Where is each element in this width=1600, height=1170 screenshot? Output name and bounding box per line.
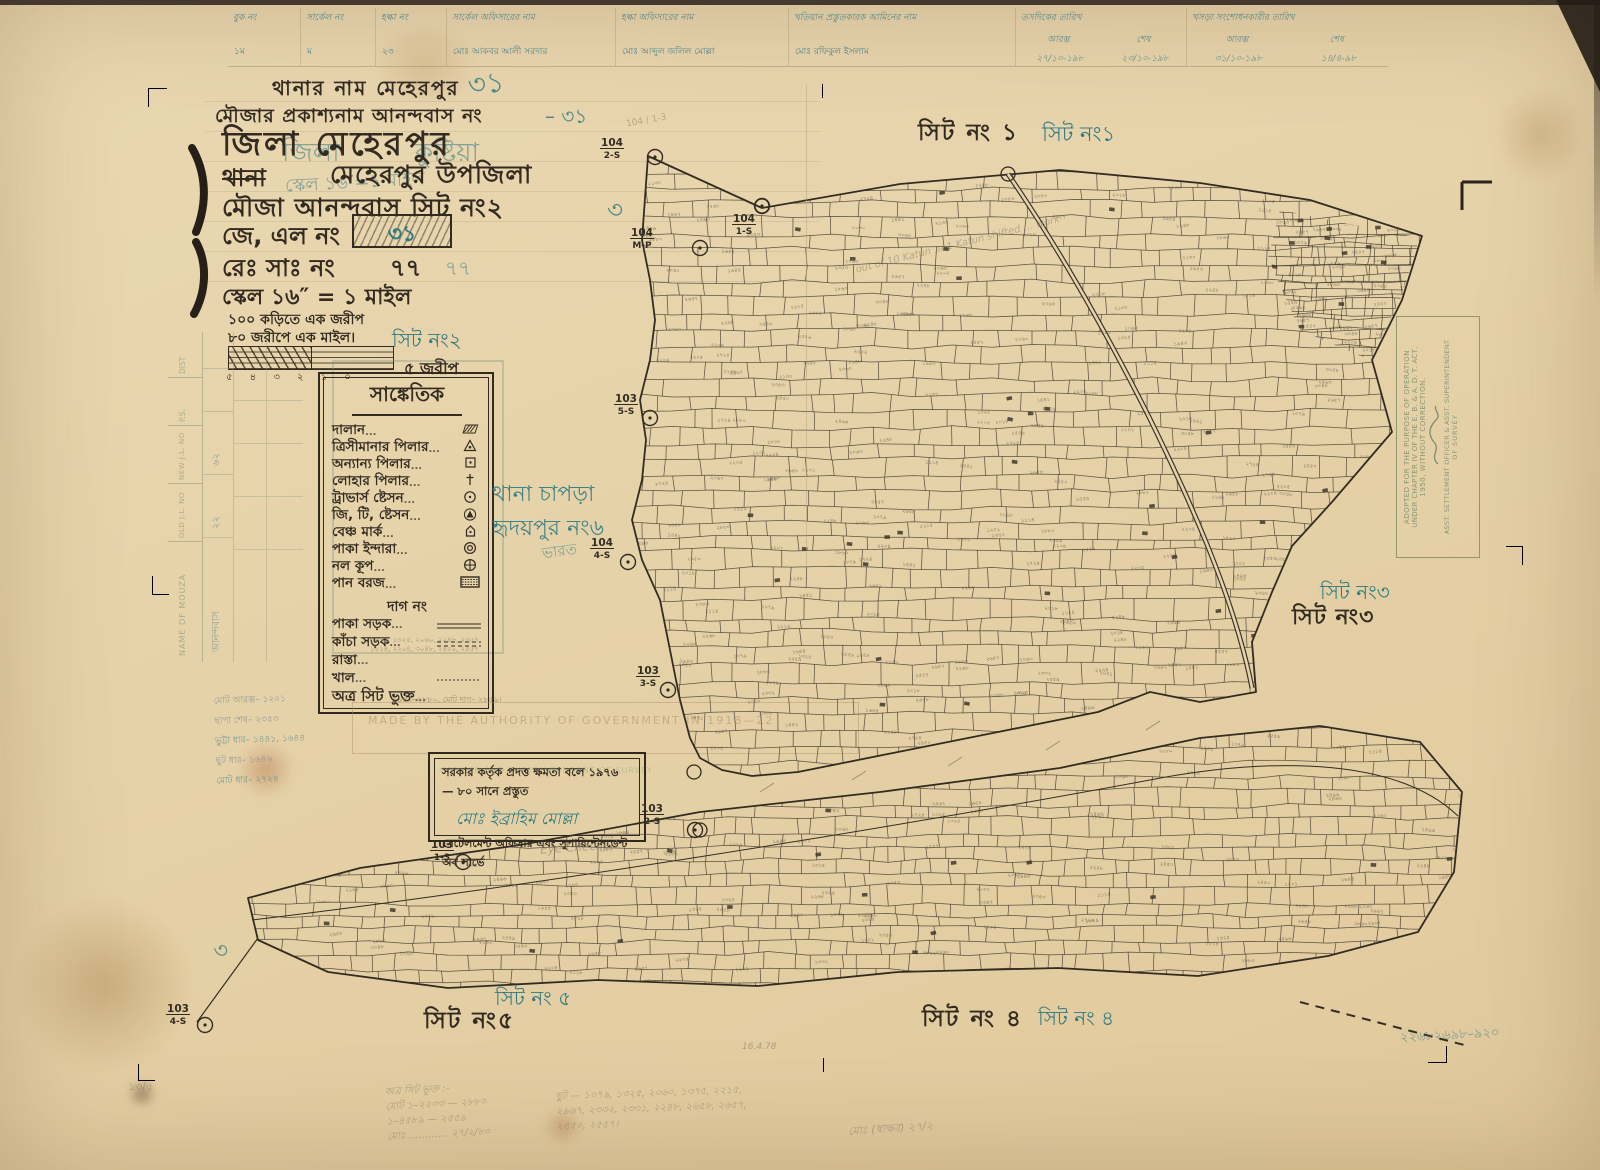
- station-sub-number: 4-S: [594, 551, 610, 561]
- svg-text:৩০৪৮: ৩০৪৮: [1181, 431, 1195, 437]
- scanned-cadastral-map-sheet: বুক নং১ম সার্কেল নংম হল্কা নং২৩ সার্কেল …: [0, 0, 1600, 1170]
- svg-text:১৬৪৪: ১৬৪৪: [792, 649, 806, 656]
- svg-text:১৩২৫: ১৩২৫: [821, 890, 835, 897]
- svg-text:২৪৫০: ২৪৫০: [1168, 662, 1182, 668]
- svg-text:১৮৬০: ১৮৬০: [834, 286, 848, 293]
- svg-text:৩০৪৮: ৩০৪৮: [1001, 740, 1016, 747]
- svg-text:১৮৬০: ১৮৬০: [1337, 775, 1351, 781]
- registration-mark: [138, 1064, 155, 1081]
- svg-text:২৫৫৭: ২৫৫৭: [630, 849, 644, 855]
- svg-text:৩০৪৮: ৩০৪৮: [884, 729, 898, 736]
- svg-text:১৩২৫: ১৩২৫: [586, 744, 600, 751]
- thana-chapra-line1: থানা চাপড়া: [492, 478, 604, 512]
- svg-text:১৯৪৩: ১৯৪৩: [759, 321, 773, 328]
- svg-text:১৩২৫: ১৩২৫: [259, 947, 273, 954]
- svg-text:১২০১: ১২০১: [1370, 262, 1383, 268]
- svg-text:২৬৫৭: ২৬৫৭: [634, 966, 648, 973]
- sheet-1-label: সিট নং ১: [918, 114, 1019, 153]
- svg-text:২৩৫৩: ২৩৫৩: [834, 265, 848, 271]
- svg-text:২২০৪: ২২০৪: [1018, 844, 1032, 851]
- svg-text:১৮৬০: ১৮৬০: [580, 808, 594, 815]
- svg-text:১১১৪: ১১১৪: [1061, 610, 1075, 617]
- svg-text:২৪৫০: ২৪৫০: [790, 912, 804, 919]
- svg-text:১৪৪১: ১৪৪১: [1200, 745, 1214, 752]
- svg-text:২৫৫৭: ২৫৫৭: [1203, 429, 1217, 435]
- survey-station: 1042-S: [600, 137, 663, 165]
- svg-text:১৬৪৪: ১৬৪৪: [1417, 349, 1431, 355]
- svg-text:১১১৪: ১১১৪: [1242, 293, 1256, 299]
- svg-text:১১১৪: ১১১৪: [663, 586, 677, 593]
- svg-text:২৫৫৯: ২৫৫৯: [421, 913, 435, 920]
- svg-text:২৩৩২: ২৩৩২: [509, 830, 523, 837]
- svg-text:১৪৪১: ১৪৪১: [799, 593, 813, 600]
- svg-text:২০৬৩: ২০৬৩: [1124, 326, 1138, 333]
- svg-text:২৬৫৮: ২৬৫৮: [1377, 454, 1391, 460]
- svg-text:২৭২৪: ২৭২৪: [1187, 770, 1201, 777]
- svg-text:১০৭৯: ১০৭৯: [1292, 411, 1306, 418]
- svg-text:২৮৮০: ২৮৮০: [1225, 857, 1239, 863]
- svg-text:১০৭৯: ১০৭৯: [362, 762, 376, 769]
- svg-text:২৫৫৯: ২৫৫৯: [261, 789, 275, 796]
- svg-text:১৩২৫: ১৩২৫: [688, 907, 702, 914]
- svg-text:২২০৫: ২২০৫: [641, 745, 655, 752]
- svg-text:১২০১: ১২০১: [1121, 427, 1135, 433]
- svg-text:১০৭৯: ১০৭৯: [1382, 159, 1396, 166]
- svg-text:২০১৮: ২০১৮: [418, 834, 432, 840]
- svg-text:১৪৪১: ১৪৪১: [690, 715, 704, 722]
- svg-text:২২০৪: ২২০৪: [656, 358, 670, 364]
- station-number: 103: [431, 839, 453, 851]
- svg-text:১১১৪: ১১১৪: [505, 882, 519, 889]
- svg-text:১১১৪: ১১১৪: [1143, 360, 1157, 366]
- svg-text:২৩৩২: ২৩৩২: [1329, 227, 1343, 233]
- svg-text:১৩২৫: ১৩২৫: [977, 410, 991, 416]
- svg-text:১১১৪: ১১১৪: [1006, 152, 1020, 159]
- svg-text:১৪৪১: ১৪৪১: [1099, 670, 1113, 678]
- svg-text:১৩২৫: ১৩২৫: [669, 718, 683, 725]
- svg-text:৩০৪৮: ৩০৪৮: [1356, 503, 1370, 510]
- svg-text:২৫৫৭: ২৫৫৭: [970, 340, 984, 346]
- svg-text:২২০৫: ২২০৫: [919, 523, 933, 531]
- svg-text:১৮৬০: ১৮৬০: [955, 659, 969, 666]
- svg-text:২৪৯৬: ২৪৯৬: [1421, 827, 1436, 834]
- svg-text:১৩২৫: ১৩২৫: [1320, 236, 1334, 243]
- svg-text:২০৬৩: ২০৬৩: [1019, 657, 1033, 663]
- svg-text:২৩৫৩: ২৩৫৩: [695, 602, 709, 608]
- svg-text:১৩২৫: ১৩২৫: [1341, 278, 1355, 285]
- svg-text:১০৭৯: ১০৭৯: [765, 680, 779, 686]
- svg-text:২৫৫৯: ২৫৫৯: [276, 869, 290, 876]
- svg-text:২৫৫৭: ২৫৫৭: [294, 967, 308, 973]
- svg-text:২২০৪: ২২০৪: [1372, 714, 1386, 721]
- svg-text:২২৬৮: ২২৬৮: [1388, 619, 1403, 626]
- svg-text:২৫৫৯: ২৫৫৯: [1407, 351, 1421, 358]
- svg-text:২২০৪: ২২০৪: [853, 349, 867, 357]
- svg-text:২৯৬৭: ২৯৬৭: [1292, 305, 1306, 312]
- svg-text:২৬৫৭: ২৬৫৭: [704, 794, 718, 801]
- svg-text:২৪৫০: ২৪৫০: [1054, 479, 1068, 486]
- svg-text:২৫৫৭: ২৫৫৭: [871, 499, 885, 506]
- svg-text:১৪৪১: ১৪৪১: [1185, 665, 1199, 673]
- svg-text:২৫৫৭: ২৫৫৭: [1351, 250, 1364, 256]
- svg-text:২৫৫৯: ২৫৫৯: [788, 656, 802, 663]
- svg-text:২২০৫: ২২০৫: [689, 354, 703, 361]
- station-number: 104: [601, 137, 623, 149]
- svg-text:২০১৮: ২০১৮: [635, 773, 649, 780]
- svg-text:২৪৯৬: ২৪৯৬: [905, 766, 920, 773]
- svg-text:২০১৮: ২০১৮: [1044, 606, 1058, 613]
- svg-text:২৭২৪: ২৭২৪: [1006, 441, 1020, 447]
- svg-text:২৫৫৯: ২৫৫৯: [1042, 406, 1056, 413]
- svg-text:২২০৫: ২২০৫: [976, 420, 990, 427]
- svg-text:২৪৯৬: ২৪৯৬: [1328, 796, 1343, 803]
- svg-text:২২৪৮: ২২৪৮: [1286, 645, 1301, 652]
- svg-text:২৫৫৯: ২৫৫৯: [1267, 733, 1281, 740]
- svg-text:১২০১: ১২০১: [957, 536, 971, 543]
- svg-text:২৯৬৭: ২৯৬৭: [714, 728, 728, 735]
- survey-station: 1035-S: [614, 393, 658, 426]
- svg-text:২৯৬৭: ২৯৬৭: [932, 801, 946, 807]
- svg-text:২২০৪: ২২০৪: [1178, 328, 1192, 335]
- svg-text:২২০৪: ২২০৪: [633, 746, 647, 753]
- svg-text:২২৬৮: ২২৬৮: [1176, 222, 1191, 230]
- svg-text:২১৩০: ২১৩০: [1396, 543, 1410, 549]
- sheet-3-label: সিট নং৩: [1292, 600, 1374, 637]
- svg-text:২২৪৮: ২২৪৮: [916, 282, 931, 289]
- svg-text:১২০১: ১২০১: [735, 966, 749, 973]
- svg-text:২৩৫৩: ২৩৫৩: [826, 807, 841, 815]
- svg-text:২৮৮০: ২৮৮০: [1226, 662, 1239, 668]
- svg-text:২৫৫৯: ২৫৫৯: [1082, 546, 1096, 554]
- svg-text:২৭২৪: ২৭২৪: [1026, 561, 1040, 567]
- svg-text:২৯৬৭: ২৯৬৭: [667, 212, 681, 218]
- svg-text:২৯৬৭: ২৯৬৭: [1368, 921, 1382, 927]
- svg-text:২২৬৮: ২২৬৮: [999, 512, 1014, 519]
- svg-text:২১৩০: ২১৩০: [1278, 152, 1292, 159]
- svg-text:১১১৪: ১১১৪: [1368, 749, 1382, 756]
- svg-text:২২৪৮: ২২৪৮: [1089, 865, 1104, 873]
- svg-text:২১৩০: ২১৩০: [1182, 255, 1196, 261]
- svg-text:২৮৮০: ২৮৮০: [1241, 958, 1255, 964]
- svg-text:১৩২৫: ১৩২৫: [812, 863, 826, 869]
- svg-text:২৩৩২: ২৩৩২: [808, 310, 822, 316]
- svg-text:১০৭৯: ১০৭৯: [1127, 769, 1141, 775]
- svg-text:২৪৯৬: ২৪৯৬: [394, 870, 408, 877]
- svg-text:২৩৫৩: ২৩৫৩: [1452, 847, 1466, 854]
- svg-text:১৯৪৩: ১৯৪৩: [1199, 568, 1213, 575]
- svg-text:২৪৯৬: ২৪৯৬: [312, 868, 326, 874]
- svg-text:২৪৯৬: ২৪৯৬: [877, 682, 891, 688]
- registration-mark: [1428, 1046, 1447, 1063]
- svg-text:২৬৫৮: ২৬৫৮: [716, 907, 731, 914]
- svg-text:২৪৫০: ২৪৫০: [1257, 879, 1271, 886]
- svg-text:১৬৪৪: ১৬৪৪: [1357, 288, 1371, 295]
- svg-text:৩০৪৮: ৩০৪৮: [990, 693, 1004, 700]
- svg-text:২২০৪: ২২০৪: [1263, 491, 1277, 498]
- svg-text:২০১৮: ২০১৮: [1115, 712, 1130, 719]
- svg-text:২০৬৩: ২০৬৩: [1391, 324, 1406, 331]
- svg-text:১১১৪: ১১১৪: [1021, 517, 1035, 524]
- svg-text:১২০১: ১২০১: [797, 838, 811, 845]
- svg-text:১০৭৯: ১০৭৯: [1231, 741, 1245, 749]
- station-sub-number: 3-S: [640, 679, 656, 689]
- svg-text:২৫৫৭: ২৫৫৭: [532, 722, 545, 728]
- svg-text:২৪৯৬: ২৪৯৬: [1327, 261, 1341, 268]
- svg-text:৩০৪৮: ৩০৪৮: [875, 299, 890, 306]
- svg-text:২৬৫৭: ২৬৫৭: [1327, 397, 1341, 404]
- svg-text:২২৪৮: ২২৪৮: [285, 843, 300, 850]
- svg-text:২৫৫৯: ২৫৫৯: [840, 652, 854, 659]
- svg-text:২১৩০: ২১৩০: [935, 220, 949, 227]
- svg-text:২৯৬৭: ২৯৬৭: [1339, 326, 1353, 332]
- svg-text:২৩৫৩: ২৩৫৩: [905, 751, 919, 758]
- svg-text:২০৬৩: ২০৬৩: [855, 520, 869, 526]
- svg-text:২৩৫৩: ২৩৫৩: [919, 748, 933, 754]
- svg-text:১২০১: ১২০১: [770, 545, 783, 551]
- svg-text:২৫৫৭: ২৫৫৭: [1086, 751, 1100, 758]
- svg-text:২৪৯৬: ২৪৯৬: [374, 733, 389, 740]
- svg-text:২৮৮০: ২৮৮০: [1041, 528, 1055, 534]
- svg-text:২৮৮০: ২৮৮০: [1385, 646, 1399, 653]
- scan-fold-marks: [192, 148, 204, 314]
- svg-text:৩০৪৮: ৩০৪৮: [856, 323, 870, 330]
- svg-text:২৫৫৯: ২৫৫৯: [856, 653, 870, 660]
- svg-text:১১১৪: ১১১৪: [360, 730, 374, 737]
- svg-text:২৭২৪: ২৭২৪: [716, 353, 730, 359]
- svg-text:২২৪৮: ২২৪৮: [790, 576, 804, 582]
- svg-text:২০৬০: ২০৬০: [936, 949, 950, 955]
- svg-text:২০৬০: ২০৬০: [838, 366, 852, 373]
- svg-text:১১১৪: ১১১৪: [705, 609, 719, 615]
- svg-text:২৬৫৮: ২৬৫৮: [1297, 919, 1311, 926]
- svg-text:২২৪৮: ২২৪৮: [1344, 903, 1359, 910]
- svg-text:২০৬০: ২০৬০: [399, 951, 413, 957]
- svg-text:২১৩০: ২১৩০: [731, 735, 745, 742]
- svg-text:১৮৬০: ১৮৬০: [1222, 535, 1236, 542]
- svg-text:২২৬৮: ২২৬৮: [720, 320, 735, 327]
- svg-text:২৭২৪: ২৭২৪: [655, 481, 669, 488]
- svg-text:২৩৫৩: ২৩৫৩: [887, 880, 902, 887]
- svg-text:১৯৪৩: ১৯৪৩: [989, 747, 1003, 754]
- svg-text:১৯৪৩: ১৯৪৩: [1189, 266, 1204, 273]
- svg-text:১৬৪৪: ১৬৪৪: [763, 477, 777, 483]
- svg-text:১৩২৫: ১৩২৫: [1216, 935, 1230, 942]
- svg-text:১৮৬০: ১৮৬০: [529, 783, 543, 790]
- svg-text:২৩৩২: ২৩৩২: [759, 711, 773, 718]
- svg-text:২৩৩২: ২৩৩২: [628, 733, 642, 739]
- svg-text:১৮৬০: ১৮৬০: [1272, 347, 1286, 354]
- svg-text:২২৬৮: ২২৬৮: [959, 313, 973, 319]
- svg-text:২০৬০: ২০৬০: [1291, 345, 1305, 352]
- svg-text:২৩৩২: ২৩৩২: [861, 917, 875, 924]
- svg-text:২৪৯৬: ২৪৯৬: [1167, 620, 1181, 626]
- svg-text:১৪৪১: ১৪৪১: [869, 584, 883, 590]
- svg-text:১৬৪৪: ১৬৪৪: [865, 708, 879, 715]
- svg-text:৩০৪৮: ৩০৪৮: [1083, 715, 1097, 722]
- svg-text:১৬৪৪: ১৬৪৪: [721, 249, 735, 256]
- svg-text:১৬৪৪: ১৬৪৪: [1062, 752, 1076, 759]
- svg-text:২৪৫০: ২৪৫০: [1418, 416, 1432, 423]
- svg-text:১০৭৯: ১০৭৯: [729, 842, 743, 848]
- svg-text:১৩২৫: ১৩২৫: [947, 819, 960, 825]
- svg-text:১৪৪১: ১৪৪১: [959, 463, 973, 471]
- svg-text:২৮৮০: ২৮৮০: [353, 854, 366, 860]
- svg-text:১৬৪৪: ১৬৪৪: [261, 810, 275, 817]
- svg-text:২২০৪: ২২০৪: [790, 304, 804, 312]
- svg-text:২৬৫৮: ২৬৫৮: [1298, 313, 1312, 319]
- svg-text:২০১৮: ২০১৮: [1399, 593, 1413, 599]
- svg-text:২৩৫৩: ২৩৫৩: [879, 933, 893, 939]
- station-number: 103: [637, 665, 659, 677]
- svg-text:২১৩০: ২১৩০: [779, 374, 793, 380]
- svg-text:২২০৫: ২২০৫: [936, 270, 950, 276]
- svg-text:২৪৫০: ২৪৫০: [1160, 861, 1174, 868]
- svg-text:২২৪৮: ২২৪৮: [879, 437, 894, 444]
- svg-text:২৬৫৮: ২৬৫৮: [1225, 491, 1239, 497]
- svg-text:২৪৫০: ২৪৫০: [446, 822, 460, 828]
- svg-text:১৬৪৪: ১৬৪৪: [1363, 187, 1377, 193]
- svg-text:২৯৬৭: ২৯৬৭: [1376, 982, 1390, 989]
- svg-text:২২০৫: ২২০৫: [662, 770, 676, 777]
- svg-text:২৪৯৬: ২৪৯৬: [1318, 379, 1332, 385]
- svg-text:১২০১: ১২০১: [1284, 881, 1298, 888]
- svg-text:২০৬৩: ২০৬৩: [1359, 454, 1373, 460]
- svg-text:২৯৬৭: ২৯৬৭: [1378, 187, 1392, 194]
- svg-text:২৪৫০: ২৪৫০: [379, 781, 393, 787]
- registration-mark: [148, 88, 167, 107]
- svg-text:২২৪৮: ২২৪৮: [1295, 903, 1310, 911]
- svg-text:২৪৯৬: ২৪৯৬: [1081, 705, 1096, 712]
- svg-text:২৫৫৯: ২৫৫৯: [1419, 534, 1432, 540]
- svg-text:২৭২৪: ২৭২৪: [717, 418, 731, 424]
- sheet-4-label-teal: সিট নং ৪: [1038, 1004, 1114, 1037]
- svg-text:৩০৪৮: ৩০৪৮: [898, 232, 913, 240]
- svg-text:১৩২৫: ১৩২৫: [1233, 576, 1247, 582]
- parcel-mesh: [248, 157, 1488, 999]
- svg-text:১৪৪১: ১৪৪১: [1088, 360, 1102, 367]
- svg-text:১০৭৯: ১০৭৯: [1015, 764, 1029, 770]
- svg-text:২৯৬৭: ২৯৬৭: [1026, 752, 1040, 759]
- svg-text:২৭২৪: ২৭২৪: [1288, 272, 1302, 279]
- svg-text:২৮৮০: ২৮৮০: [732, 417, 746, 424]
- svg-text:২০১৮: ২০১৮: [551, 775, 566, 782]
- svg-text:১৮৬০: ১৮৬০: [1276, 219, 1290, 226]
- svg-text:২০৬৩: ২০৬৩: [1041, 301, 1056, 308]
- svg-text:২৮৮০: ২৮৮০: [757, 669, 771, 676]
- svg-text:২২৪৮: ২২৪৮: [1327, 528, 1342, 535]
- svg-text:২৩৫৩: ২৩৫৩: [389, 731, 403, 737]
- registration-mark: [1506, 546, 1523, 565]
- svg-text:৩০৪৮: ৩০৪৮: [1325, 367, 1340, 374]
- svg-text:১৪৪১: ১৪৪১: [1097, 330, 1111, 337]
- svg-text:১২০১: ১২০১: [1434, 855, 1448, 862]
- svg-text:২০১৮: ২০১৮: [866, 611, 881, 618]
- svg-text:২২০৪: ২২০৪: [710, 342, 724, 349]
- svg-text:২২০৪: ২২০৪: [1155, 735, 1169, 742]
- svg-text:২৪৯৬: ২৪৯৬: [1131, 723, 1146, 730]
- svg-text:১৩২৫: ১৩২৫: [1117, 335, 1131, 342]
- svg-text:২২৬৮: ২২৬৮: [345, 887, 359, 894]
- svg-text:২৩৫৩: ২৩৫৩: [771, 382, 785, 389]
- svg-text:২০৬০: ২০৬০: [1261, 280, 1275, 286]
- svg-text:২০১৮: ২০১৮: [1376, 617, 1390, 623]
- svg-text:১৯৪৩: ১৯৪৩: [933, 732, 947, 738]
- svg-text:১৬৪৪: ১৬৪৪: [727, 267, 741, 274]
- svg-text:২০৬০: ২০৬০: [1010, 967, 1024, 975]
- svg-text:২৫৫৯: ২৫৫৯: [1049, 538, 1063, 544]
- svg-text:১৪৪১: ১৪৪১: [785, 722, 799, 729]
- svg-text:১১১৪: ১১১৪: [1398, 433, 1411, 439]
- sheet-1-label-teal: সিট নং১: [1042, 118, 1115, 153]
- svg-text:২১৩০: ২১৩০: [1168, 185, 1182, 191]
- svg-text:১৬৪৪: ১৬৪৪: [538, 906, 551, 912]
- svg-text:২০১৮: ২০১৮: [1362, 347, 1376, 353]
- svg-text:২২৬৮: ২২৬৮: [1359, 904, 1373, 911]
- svg-text:১৮৬০: ১৮৬০: [834, 550, 848, 557]
- svg-text:২০৬০: ২০৬০: [852, 225, 866, 231]
- svg-text:১৩২৫: ১৩২৫: [486, 829, 500, 837]
- paper-crease: [806, 85, 807, 565]
- svg-text:২৫৫৭: ২৫৫৭: [636, 335, 650, 341]
- svg-text:১০৭৯: ১০৭৯: [1085, 918, 1099, 925]
- svg-text:২৬৫৮: ২৬৫৮: [803, 360, 817, 366]
- svg-text:১৬৪৪: ১৬৪৪: [772, 838, 786, 845]
- survey-station: 104M-P: [630, 227, 708, 256]
- svg-text:২০৬৩: ২০৬৩: [1444, 906, 1459, 913]
- svg-text:২০৬০: ২০৬০: [1373, 813, 1387, 820]
- svg-text:২১৩০: ২১৩০: [1099, 766, 1113, 773]
- svg-text:২৪৫০: ২৪৫০: [1271, 613, 1285, 619]
- svg-text:২৯৬৭: ২৯৬৭: [473, 937, 487, 943]
- svg-text:২৭২৪: ২৭২৪: [860, 196, 874, 203]
- svg-text:২১৩০: ২১৩০: [1300, 566, 1314, 573]
- svg-text:১৬৪৪: ১৬৪৪: [616, 830, 630, 837]
- svg-text:২০১৮: ২০১৮: [767, 439, 782, 446]
- svg-text:১০৭৯: ১০৭৯: [1294, 240, 1308, 247]
- svg-text:১১১৪: ১১১৪: [925, 460, 939, 467]
- svg-text:২৮৮০: ২৮৮০: [380, 883, 394, 890]
- svg-text:২০৬০: ২০৬০: [955, 224, 969, 230]
- svg-text:২৬৫৮: ২৬৫৮: [1030, 469, 1045, 476]
- svg-text:২৬৫৭: ২৬৫৭: [986, 656, 1000, 663]
- svg-text:২৬৫৮: ২৬৫৮: [1420, 399, 1434, 405]
- svg-text:১২০১: ১২০১: [1404, 634, 1418, 642]
- svg-text:২০১৮: ২০১৮: [1092, 291, 1107, 299]
- svg-text:২৩৩২: ২৩৩২: [977, 764, 991, 771]
- svg-text:২৪৯৬: ২৪৯৬: [529, 808, 543, 814]
- svg-text:২৫৫৭: ২৫৫৭: [1214, 649, 1228, 656]
- station-number: 103: [615, 393, 637, 405]
- svg-text:১৬৪৪: ১৬৪৪: [306, 758, 320, 764]
- registration-mark: [152, 576, 169, 595]
- svg-text:১০৭৯: ১০৭৯: [761, 604, 775, 611]
- svg-text:২২৪৮: ২২৪৮: [1385, 356, 1399, 362]
- svg-text:২৪৫০: ২৪৫০: [733, 506, 746, 512]
- svg-text:১৩২৫: ১৩২৫: [1458, 793, 1472, 799]
- pencil-date-note: 16.4.78: [742, 1042, 776, 1052]
- svg-text:২৬৫৭: ২৬৫৭: [1173, 645, 1187, 652]
- svg-text:১৩২৫: ১৩২৫: [1023, 741, 1037, 747]
- svg-text:২০১৮: ২০১৮: [1179, 416, 1194, 423]
- svg-text:১১১৪: ১১১৪: [882, 978, 896, 985]
- registration-mark: [822, 84, 825, 98]
- svg-text:৩০৪৮: ৩০৪৮: [1279, 491, 1294, 499]
- svg-text:২০৬০: ২০৬০: [1254, 590, 1268, 597]
- svg-text:২২৬৮: ২২৬৮: [706, 204, 720, 210]
- svg-text:২৬৫৮: ২৬৫৮: [668, 522, 682, 528]
- thana-chapra-note: থানা চাপড়া হৃদয়পুর নং৬: [492, 478, 604, 546]
- svg-text:১০৭৯: ১০৭৯: [873, 514, 887, 521]
